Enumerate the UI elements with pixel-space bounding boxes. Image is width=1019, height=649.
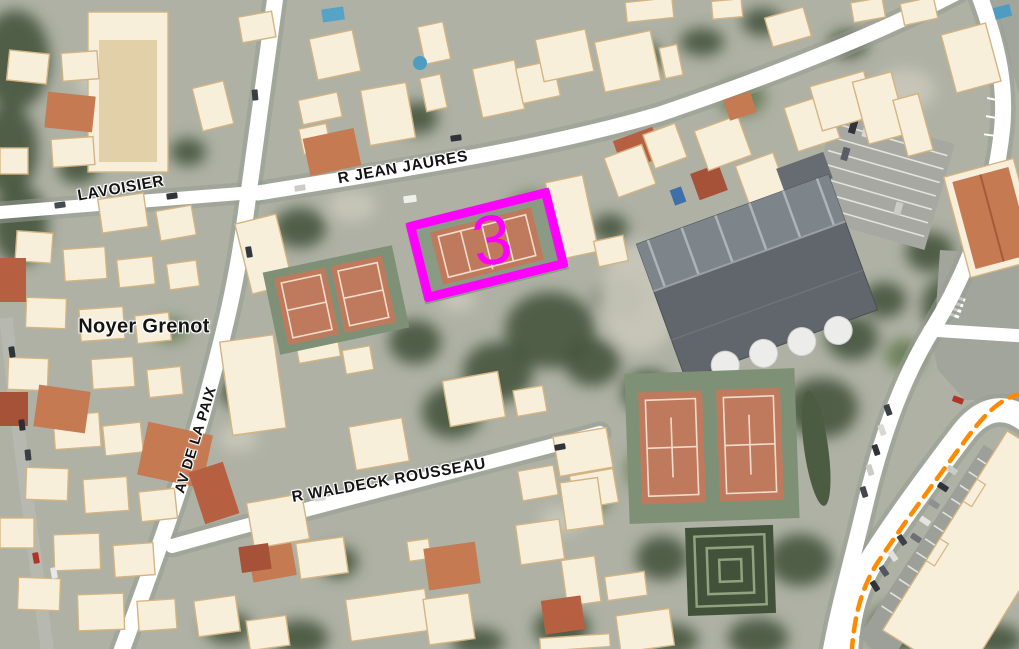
hedge-maze	[685, 525, 776, 616]
road-branch-right	[930, 330, 1019, 336]
map-viewport[interactable]: LAVOISIER R JEAN JAURES AV DE LA PAIX R …	[0, 0, 1019, 649]
locality-label-noyer-grenot: Noyer Grenot	[78, 316, 209, 339]
highlight-number[interactable]: 3	[457, 196, 528, 284]
large-building-top-left	[99, 40, 157, 162]
